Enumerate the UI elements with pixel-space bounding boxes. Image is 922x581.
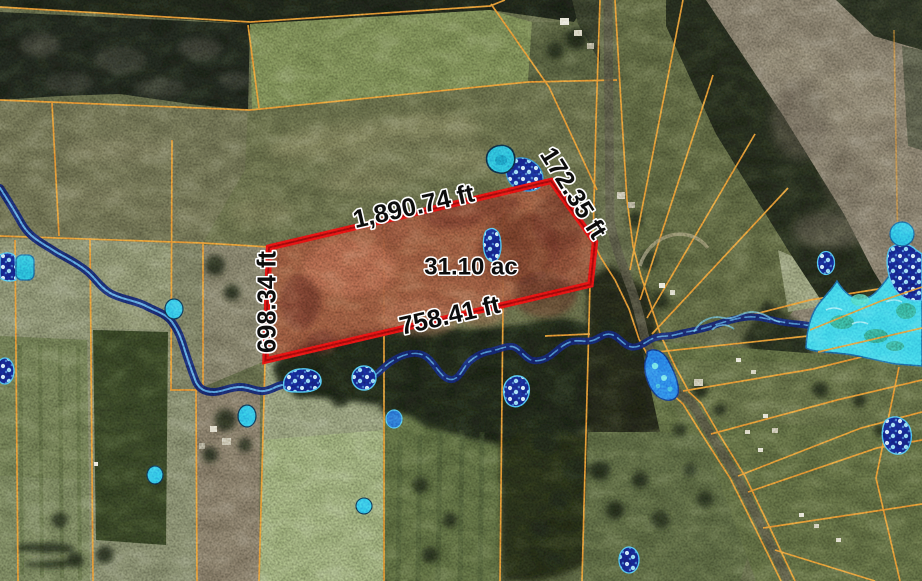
svg-text:31.10 ac: 31.10 ac xyxy=(424,253,517,280)
svg-text:698.34 ft: 698.34 ft xyxy=(254,250,282,353)
